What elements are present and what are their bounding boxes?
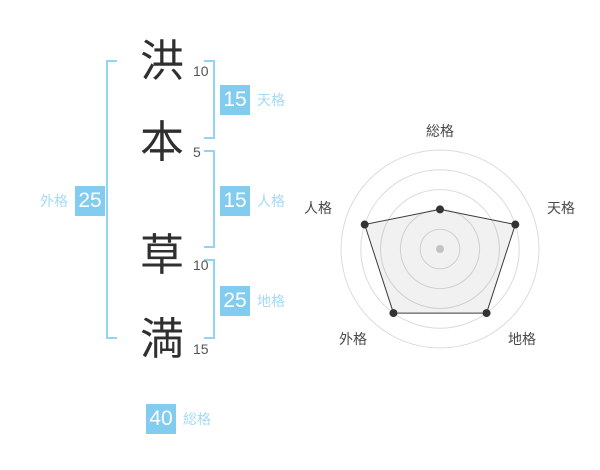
name-char-row-1: 洪 10 <box>140 40 209 84</box>
name-kanji-2: 本 <box>140 121 184 165</box>
radar-data-point <box>361 221 369 229</box>
name-kanji-3: 草 <box>140 234 184 278</box>
radar-axis-label-2: 天格 <box>547 198 575 218</box>
radar-axis-label-4: 外格 <box>339 329 367 349</box>
name-char-row-2: 本 5 <box>140 121 201 165</box>
soukaku-label: 総格 <box>183 409 211 429</box>
radar-data-point <box>483 309 491 317</box>
jinkaku-badge-group: 15 人格 <box>220 186 285 216</box>
tenkaku-label: 天格 <box>257 90 285 110</box>
tenkaku-value: 15 <box>220 85 250 115</box>
chikaku-badge-group: 25 地格 <box>220 286 285 316</box>
radar-data-point <box>436 205 444 213</box>
gaikaku-bracket <box>106 60 117 339</box>
stroke-count-2: 5 <box>193 145 201 159</box>
radar-axis-label-3: 地格 <box>508 329 536 349</box>
soukaku-badge-group: 40 総格 <box>146 404 211 434</box>
name-char-row-4: 満 15 <box>140 318 209 362</box>
radar-axis-label-5: 人格 <box>304 198 332 218</box>
radar-data-polygon <box>365 209 516 313</box>
soukaku-value: 40 <box>146 404 176 434</box>
gaikaku-badge-group: 外格 25 <box>40 186 105 216</box>
stroke-count-3: 10 <box>193 258 209 272</box>
name-char-row-3: 草 10 <box>140 234 209 278</box>
radar-data-point <box>511 221 519 229</box>
gaikaku-value: 25 <box>75 186 105 216</box>
radar-chart: 総格天格地格外格人格 <box>300 100 600 380</box>
name-kanji-1: 洪 <box>140 40 184 84</box>
jinkaku-value: 15 <box>220 186 250 216</box>
jinkaku-label: 人格 <box>257 191 285 211</box>
chikaku-label: 地格 <box>257 291 285 311</box>
stroke-count-4: 15 <box>193 342 209 356</box>
name-kanji-4: 満 <box>140 318 184 362</box>
stroke-count-1: 10 <box>193 64 209 78</box>
gaikaku-label: 外格 <box>40 191 68 211</box>
chikaku-value: 25 <box>220 286 250 316</box>
radar-axis-label-1: 総格 <box>426 121 454 141</box>
name-fortune-diagram-page: 洪 10 本 5 草 10 満 15 15 天格 15 人格 25 地格 外格 … <box>0 0 600 470</box>
tenkaku-badge-group: 15 天格 <box>220 85 285 115</box>
radar-data-point <box>389 309 397 317</box>
radar-center-dot <box>436 245 444 253</box>
